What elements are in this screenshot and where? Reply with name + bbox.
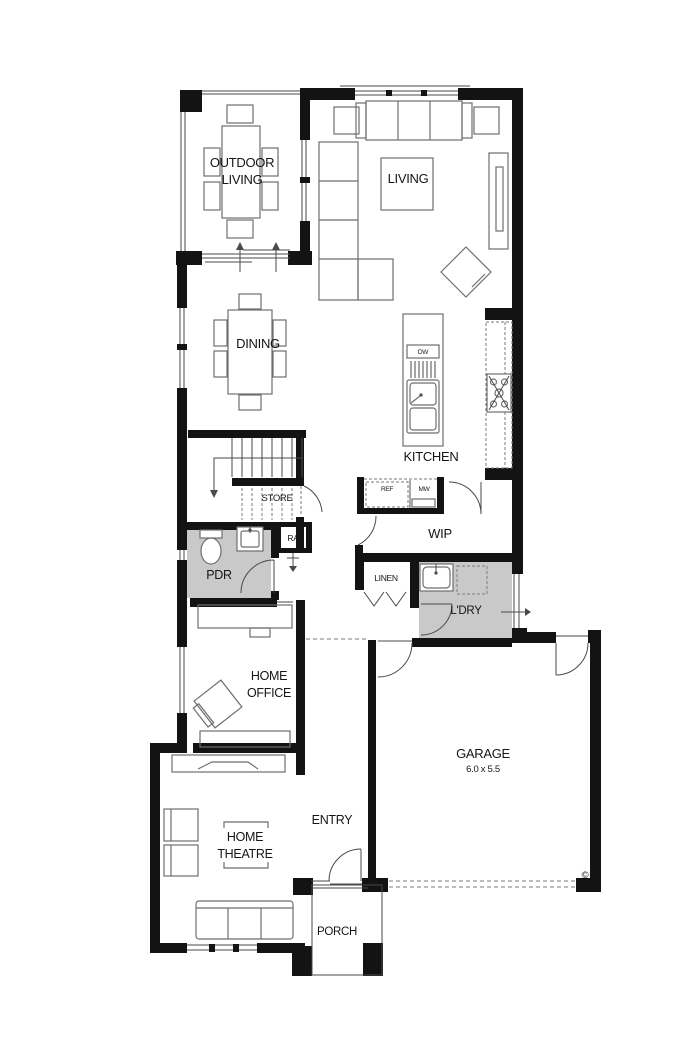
pantry-kitchen-door	[449, 482, 481, 514]
media-cabinet	[172, 755, 285, 772]
armchair	[164, 845, 198, 876]
pantry-fittings	[357, 477, 444, 514]
dining-label: DINING	[236, 336, 280, 351]
wet-area-floors	[187, 527, 512, 643]
office-chair	[190, 680, 242, 731]
toilet	[201, 538, 221, 564]
living-label: LIVING	[388, 171, 429, 186]
stair-direction-arrow	[210, 490, 218, 498]
kitchen-label: KITCHEN	[404, 449, 459, 464]
desk	[198, 605, 292, 628]
garage-internal-door	[378, 641, 412, 677]
garage-dimensions: 6.0 x 5.5	[466, 764, 500, 775]
home-theatre-label-line1: HOME	[227, 830, 263, 844]
copyright-mark: ©	[582, 870, 589, 881]
home-theatre-label-line2: THEATRE	[217, 847, 272, 861]
home-office-label-line1: HOME	[251, 669, 287, 683]
dashed-lines	[306, 639, 575, 887]
linen-bifold-doors	[364, 592, 406, 606]
sink	[407, 380, 439, 433]
garage-side-door	[556, 636, 588, 675]
porch-label: PORCH	[317, 926, 357, 938]
microwave-shelf	[412, 499, 435, 507]
dining-furniture	[214, 294, 286, 410]
kitchen-fittings	[403, 314, 512, 468]
outdoor-living-label-line2: LIVING	[222, 172, 263, 187]
garage-door-line	[389, 881, 575, 887]
return-air-duct	[287, 553, 299, 572]
toilet-cistern	[200, 530, 222, 538]
living-furniture	[319, 101, 508, 300]
linen-label: LINEN	[374, 573, 398, 583]
dw-label: DW	[418, 349, 429, 356]
floor-plan-page: OUTDOOR LIVING LIVING DINING KITCHEN STO…	[0, 0, 700, 1045]
laundry-label: L'DRY	[450, 605, 482, 617]
store-door	[304, 486, 322, 512]
mw-label: MW	[419, 486, 431, 493]
ottoman	[441, 247, 491, 297]
outdoor-living-label-line1: OUTDOOR	[210, 155, 274, 170]
slider-arrows	[236, 242, 280, 272]
pantry-hall-door	[358, 516, 376, 545]
pdr-label: PDR	[206, 568, 232, 582]
garage-label: GARAGE	[456, 746, 510, 761]
ra-label: RA	[287, 533, 299, 543]
entry-label: ENTRY	[312, 813, 354, 827]
ref-label: REF	[381, 486, 393, 493]
theatre-sofa	[196, 901, 293, 939]
home-office-label-line2: OFFICE	[247, 686, 291, 700]
front-door	[329, 849, 361, 881]
floor-plan-drawing: OUTDOOR LIVING LIVING DINING KITCHEN STO…	[0, 0, 700, 1045]
store-label: STORE	[261, 493, 292, 504]
armchair	[164, 809, 198, 841]
wip-label: WIP	[428, 526, 452, 541]
cooktop	[487, 374, 511, 412]
